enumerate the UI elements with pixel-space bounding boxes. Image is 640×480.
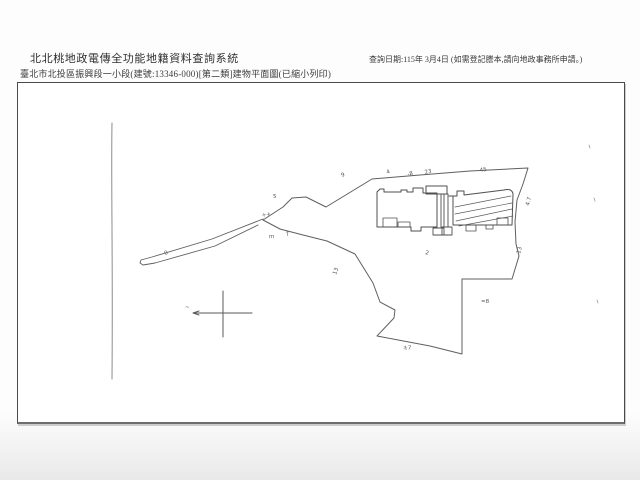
sketch-annotation: ±7 <box>403 345 412 352</box>
sketch-annotation: 2 <box>424 250 429 257</box>
sketch-path <box>398 222 410 227</box>
plan-svg: 94-823455++7m0±7213=84.713~ <box>0 0 640 480</box>
sketch-annotation: =8 <box>481 299 490 305</box>
page: { "header": { "system_title": "北北桃地政電傳全功… <box>0 0 640 480</box>
sketch-path <box>140 219 263 265</box>
sketch-path <box>437 194 441 228</box>
sketch-annotation: 4 <box>386 169 392 176</box>
sketch-annotation: ++ <box>261 211 272 219</box>
sketch-annotation: 23 <box>424 169 433 176</box>
sketch-annotation: 9 <box>340 172 346 179</box>
sketch-path <box>112 123 113 379</box>
sketch-annotation: ~ <box>185 305 190 311</box>
sketch-annotation: 4.7 <box>525 196 533 206</box>
sketch-path <box>444 194 448 227</box>
sketch-annotation: -8 <box>407 171 414 178</box>
sketch-path <box>263 168 528 354</box>
sketch-annotation: 13 <box>332 267 340 276</box>
sketch-path <box>466 225 493 231</box>
sketch-path <box>383 218 397 227</box>
sketch-annotation: 7 <box>285 231 290 238</box>
sketch-annotation: 13 <box>516 246 524 255</box>
sketch-path <box>589 145 598 303</box>
sketch-annotation: 0 <box>164 250 170 257</box>
sketch-annotation: 45 <box>479 167 487 174</box>
sketch-path <box>497 218 508 225</box>
sketch-annotation: m <box>269 234 274 240</box>
sketch-path <box>455 196 513 226</box>
sketch-path <box>193 291 252 337</box>
sketch-annotation: 5 <box>273 194 277 200</box>
